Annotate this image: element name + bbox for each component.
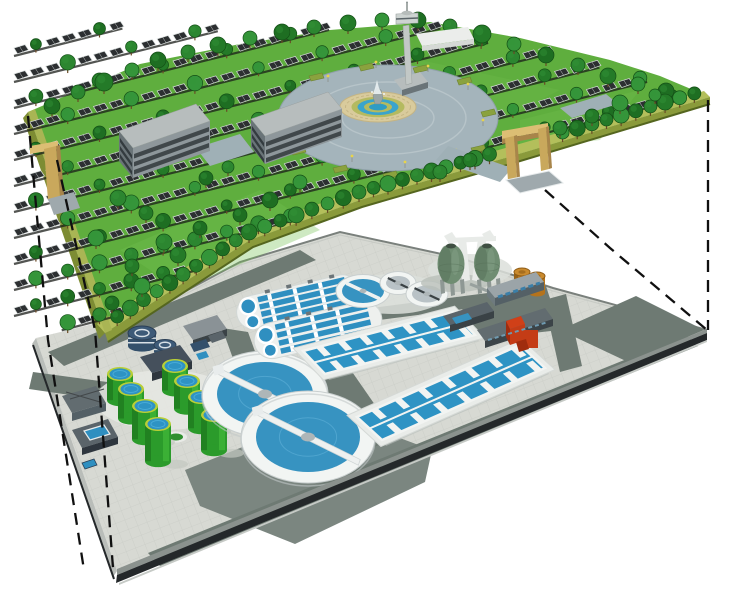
tree-highlight (295, 177, 301, 183)
tree-highlight (342, 17, 349, 24)
small-tank-hub (395, 281, 402, 285)
tree-highlight (190, 26, 196, 32)
tree-highlight (475, 27, 483, 35)
tree-highlight (107, 298, 113, 304)
tree-highlight (223, 201, 228, 206)
tree-highlight (413, 50, 419, 56)
scene-container (0, 0, 740, 589)
tree-highlight (231, 236, 237, 242)
tree-highlight (62, 291, 68, 297)
tree-highlight (62, 213, 69, 220)
tree-highlight (573, 60, 579, 66)
tree-highlight (587, 111, 593, 117)
egg-cap (482, 244, 492, 249)
tree-highlight (189, 77, 196, 84)
tree-highlight (235, 210, 241, 216)
tree-highlight (125, 197, 132, 204)
tree-highlight (674, 92, 680, 98)
tree-highlight (183, 47, 189, 53)
tree-highlight (95, 180, 100, 185)
tree-highlight (243, 226, 250, 233)
small-tank-hub (360, 289, 367, 293)
tree-highlight (172, 249, 179, 256)
tree-highlight (127, 261, 133, 267)
tree-highlight (259, 221, 265, 227)
tree-highlight (445, 21, 451, 27)
tree-highlight (30, 273, 37, 280)
tree-highlight (382, 178, 389, 185)
tree-highlight (63, 109, 69, 115)
tree-highlight (164, 277, 171, 284)
tree-highlight (31, 247, 37, 253)
tree-highlight (323, 199, 329, 205)
lamp-light (351, 155, 354, 158)
tree-highlight (32, 300, 37, 305)
tree-highlight (124, 302, 131, 309)
egg-highlight (487, 249, 495, 274)
tree-highlight (286, 82, 291, 87)
tree-highlight (95, 128, 101, 134)
tree-highlight (660, 85, 667, 92)
lamp-light (327, 75, 330, 78)
tree-highlight (397, 174, 403, 180)
tree-highlight (152, 286, 158, 292)
egg-cap (446, 244, 456, 249)
tree-highlight (224, 163, 229, 168)
tree-highlight (112, 312, 118, 318)
tree-highlight (94, 257, 101, 264)
tree-highlight (95, 284, 100, 289)
lamp-light (375, 61, 378, 64)
tree-highlight (90, 232, 97, 239)
tree-highlight (191, 261, 197, 267)
tree-highlight (646, 102, 652, 108)
tree-highlight (94, 309, 100, 315)
tree-highlight (222, 227, 228, 233)
tree-highlight (354, 187, 360, 193)
tree-highlight (127, 42, 132, 47)
tree-highlight (195, 223, 201, 229)
tree-highlight (276, 216, 282, 222)
facility-illustration (0, 0, 740, 589)
small-tank-hub (424, 292, 431, 296)
tree-highlight (254, 63, 259, 68)
tree-highlight (633, 79, 639, 85)
tree-highlight (555, 123, 561, 129)
tree-highlight (540, 70, 546, 76)
silo-hatch (518, 270, 525, 274)
tree-highlight (63, 266, 69, 272)
tree-highlight (631, 106, 637, 112)
tree-highlight (651, 91, 656, 96)
tree-highlight (63, 162, 68, 167)
tree-highlight (141, 208, 147, 214)
tree-highlight (286, 185, 291, 190)
tree-highlight (95, 24, 100, 29)
tree-highlight (602, 115, 608, 121)
tree-highlight (178, 269, 184, 275)
tank-shade (145, 424, 151, 461)
tree-highlight (509, 39, 515, 45)
tree-highlight (508, 52, 514, 58)
tree-highlight (203, 251, 210, 258)
tree-highlight (62, 316, 69, 323)
tower-pod-roof (402, 11, 413, 15)
tree-highlight (456, 158, 462, 164)
tree-highlight (126, 93, 133, 100)
lamp-light (467, 83, 470, 86)
tree-highlight (435, 167, 441, 173)
fountain-tier (369, 104, 387, 111)
tree-highlight (32, 40, 37, 45)
tree-highlight (317, 47, 323, 53)
tree-highlight (157, 215, 164, 222)
tree-highlight (381, 31, 387, 37)
tree-highlight (73, 87, 79, 93)
tree-highlight (349, 169, 355, 175)
tree-highlight (112, 192, 119, 199)
spray-drop (383, 93, 385, 95)
tower-pod-band (396, 18, 418, 19)
tree-highlight (136, 280, 143, 287)
tree-highlight (276, 26, 283, 33)
tree-highlight (309, 22, 315, 28)
tree-highlight (426, 165, 433, 172)
tree-highlight (201, 173, 207, 179)
tree-highlight (152, 54, 159, 61)
tree-highlight (572, 89, 578, 95)
tree-highlight (377, 15, 383, 21)
tree-highlight (126, 275, 133, 282)
clarifier-hub (301, 433, 315, 442)
lamp-light (482, 119, 485, 122)
tree-highlight (307, 204, 313, 210)
spray-drop (371, 91, 373, 93)
tree-highlight (31, 91, 37, 97)
tree-highlight (126, 250, 132, 256)
tree-highlight (217, 244, 223, 250)
tree-highlight (191, 183, 196, 188)
tree-highlight (484, 149, 490, 155)
row-ground-line (14, 29, 122, 56)
tree-highlight (614, 97, 621, 104)
tree-highlight (465, 155, 471, 161)
tree-highlight (158, 268, 164, 274)
clarifier-hub (258, 390, 272, 399)
tree-highlight (509, 105, 514, 110)
tree-highlight (212, 39, 219, 46)
lamp-light (427, 65, 430, 68)
tree-highlight (369, 183, 375, 189)
tree-highlight (189, 234, 196, 241)
tree-highlight (689, 88, 695, 94)
tree-highlight (97, 75, 105, 83)
tree-highlight (571, 122, 578, 129)
tree-highlight (602, 70, 609, 77)
tree-highlight (264, 194, 271, 201)
tree-highlight (412, 170, 418, 176)
gas-tank-top (128, 326, 156, 340)
tree-highlight (254, 167, 260, 173)
tree-highlight (127, 65, 133, 71)
tree-highlight (245, 33, 251, 39)
tree-highlight (62, 56, 69, 63)
gas-holder-tank (128, 326, 156, 352)
tree-highlight (158, 236, 165, 243)
tree-highlight (290, 209, 297, 216)
tree-highlight (221, 96, 228, 103)
lamp-light (404, 161, 407, 164)
tree-highlight (337, 192, 344, 199)
tree-highlight (540, 49, 547, 56)
antenna-tip (406, 2, 408, 4)
tree-highlight (46, 100, 53, 107)
